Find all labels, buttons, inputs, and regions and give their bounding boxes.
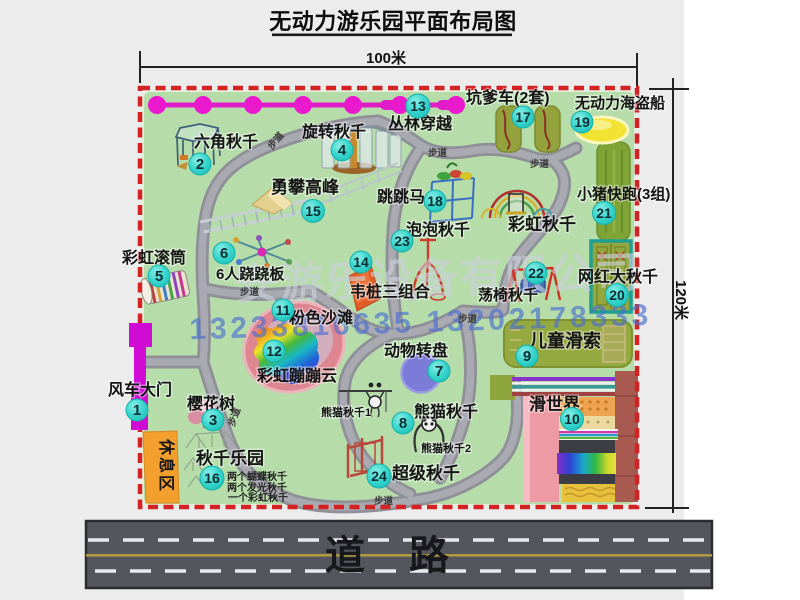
svg-text:六角秋千: 六角秋千: [194, 132, 258, 151]
svg-text:彩虹秋千: 彩虹秋千: [507, 214, 576, 234]
svg-text:8: 8: [399, 415, 407, 432]
svg-text:风车大门: 风车大门: [108, 380, 172, 399]
svg-text:6人跷跷板: 6人跷跷板: [216, 265, 285, 283]
svg-text:6: 6: [220, 245, 228, 262]
svg-text:20: 20: [609, 287, 625, 303]
svg-text:两个蝴蝶秋千: 两个蝴蝶秋千: [227, 470, 287, 483]
svg-text:步道: 步道: [530, 158, 550, 170]
svg-text:13: 13: [410, 98, 426, 114]
svg-text:勇攀高峰: 勇攀高峰: [271, 177, 340, 197]
svg-text:坑爹车(2套): 坑爹车(2套): [466, 88, 550, 107]
svg-text:3: 3: [209, 412, 217, 429]
svg-text:小猪快跑(3组): 小猪快跑(3组): [577, 185, 670, 203]
svg-text:17: 17: [515, 109, 531, 125]
svg-text:超级秋千: 超级秋千: [392, 463, 460, 483]
svg-text:步道: 步道: [374, 495, 394, 507]
svg-text:15: 15: [305, 203, 321, 219]
svg-text:18: 18: [427, 193, 443, 209]
svg-text:21: 21: [596, 205, 612, 221]
svg-text:秋千乐园: 秋千乐园: [196, 448, 264, 468]
svg-text:粉色沙滩: 粉色沙滩: [289, 308, 353, 327]
svg-text:100米: 100米: [366, 49, 407, 67]
svg-text:路: 路: [409, 534, 450, 578]
svg-text:无动力海盗船: 无动力海盗船: [574, 94, 665, 112]
svg-text:熊猫秋千: 熊猫秋千: [414, 402, 478, 421]
svg-text:旋转秋千: 旋转秋千: [301, 122, 366, 141]
svg-text:休息区: 休息区: [157, 438, 176, 493]
svg-text:动物转盘: 动物转盘: [384, 341, 448, 360]
svg-text:彩虹蹦蹦云: 彩虹蹦蹦云: [256, 366, 337, 385]
svg-text:120米: 120米: [672, 280, 690, 321]
svg-text:彩虹滚筒: 彩虹滚筒: [121, 248, 186, 267]
svg-text:11: 11: [276, 302, 291, 318]
svg-text:12: 12: [266, 343, 282, 359]
svg-text:7: 7: [435, 363, 443, 380]
svg-text:19: 19: [574, 114, 590, 130]
svg-text:22: 22: [528, 265, 544, 281]
svg-text:步道: 步道: [240, 286, 260, 298]
svg-text:无动力游乐园平面布局图: 无动力游乐园平面布局图: [269, 9, 517, 34]
svg-text:1: 1: [133, 402, 141, 419]
svg-text:24: 24: [371, 468, 387, 484]
svg-text:步道: 步道: [458, 313, 478, 325]
svg-text:14: 14: [353, 254, 369, 270]
svg-text:4: 4: [338, 142, 347, 159]
svg-text:韦桩三组合: 韦桩三组合: [350, 282, 431, 301]
svg-text:步道: 步道: [428, 147, 448, 159]
svg-text:荡椅秋千: 荡椅秋千: [478, 286, 538, 304]
svg-text:跳跳马: 跳跳马: [377, 187, 425, 206]
svg-text:儿童滑索: 儿童滑索: [528, 330, 601, 351]
svg-text:23: 23: [394, 233, 410, 249]
svg-text:2: 2: [196, 156, 204, 173]
svg-text:9: 9: [523, 348, 531, 365]
svg-text:一个彩虹秋千: 一个彩虹秋千: [228, 491, 288, 504]
svg-text:5: 5: [155, 268, 163, 285]
svg-text:16: 16: [204, 470, 220, 486]
svg-text:道: 道: [325, 534, 365, 578]
svg-text:10: 10: [564, 411, 580, 427]
svg-text:熊猫秋千2: 熊猫秋千2: [421, 441, 471, 455]
svg-text:熊猫秋千1: 熊猫秋千1: [321, 405, 371, 419]
svg-text:泡泡秋千: 泡泡秋千: [406, 220, 470, 239]
